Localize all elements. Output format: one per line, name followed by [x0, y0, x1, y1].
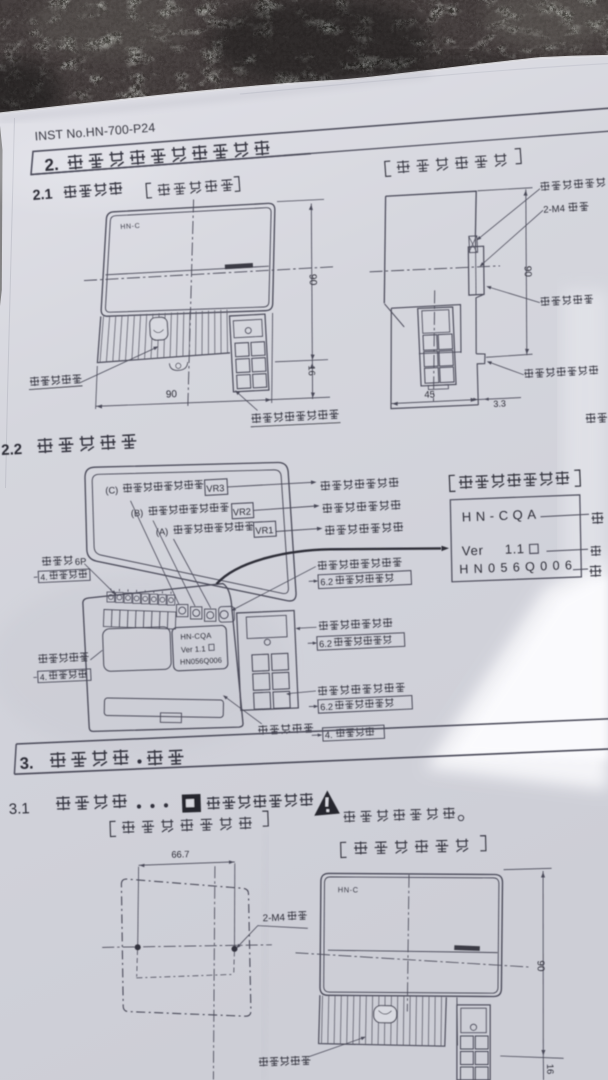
svg-text:(C): (C) [105, 485, 118, 496]
svg-text:Ver: Ver [462, 543, 484, 559]
svg-text:2.1: 2.1 [32, 187, 53, 204]
svg-text:6P: 6P [75, 555, 87, 567]
svg-text:VR1: VR1 [255, 525, 274, 536]
svg-text:2.: 2. [44, 155, 60, 175]
svg-text:HN-C: HN-C [338, 885, 359, 894]
svg-text:(A): (A) [156, 527, 169, 538]
svg-text:16: 16 [307, 365, 317, 376]
svg-text:2-M4: 2-M4 [263, 913, 286, 925]
svg-text:45: 45 [424, 389, 435, 400]
svg-text:4.: 4. [40, 672, 48, 682]
svg-text:2.2: 2.2 [1, 441, 23, 459]
svg-text:6.2: 6.2 [320, 577, 333, 588]
svg-text:90: 90 [535, 960, 546, 972]
svg-text:VR2: VR2 [233, 507, 252, 518]
svg-text:66.7: 66.7 [171, 849, 189, 860]
svg-text:6.2: 6.2 [319, 639, 332, 650]
svg-text:6.2: 6.2 [320, 702, 333, 713]
svg-text:90: 90 [307, 274, 318, 286]
svg-text:Ver 1.1: Ver 1.1 [181, 644, 206, 654]
svg-text:3.3: 3.3 [493, 398, 506, 409]
svg-text:4.: 4. [40, 572, 48, 582]
svg-text:16: 16 [545, 1064, 555, 1075]
svg-text:2-M4: 2-M4 [543, 203, 565, 215]
svg-text:3.1: 3.1 [9, 800, 30, 818]
svg-text:90: 90 [166, 389, 178, 400]
svg-text:HN-C: HN-C [120, 223, 140, 231]
svg-text:3.: 3. [19, 754, 34, 773]
svg-text:(B): (B) [131, 508, 144, 519]
svg-text:1.1: 1.1 [505, 541, 525, 557]
svg-text:90: 90 [522, 266, 533, 278]
svg-text:HN-CQA: HN-CQA [180, 631, 212, 641]
svg-text:VR3: VR3 [206, 483, 225, 494]
